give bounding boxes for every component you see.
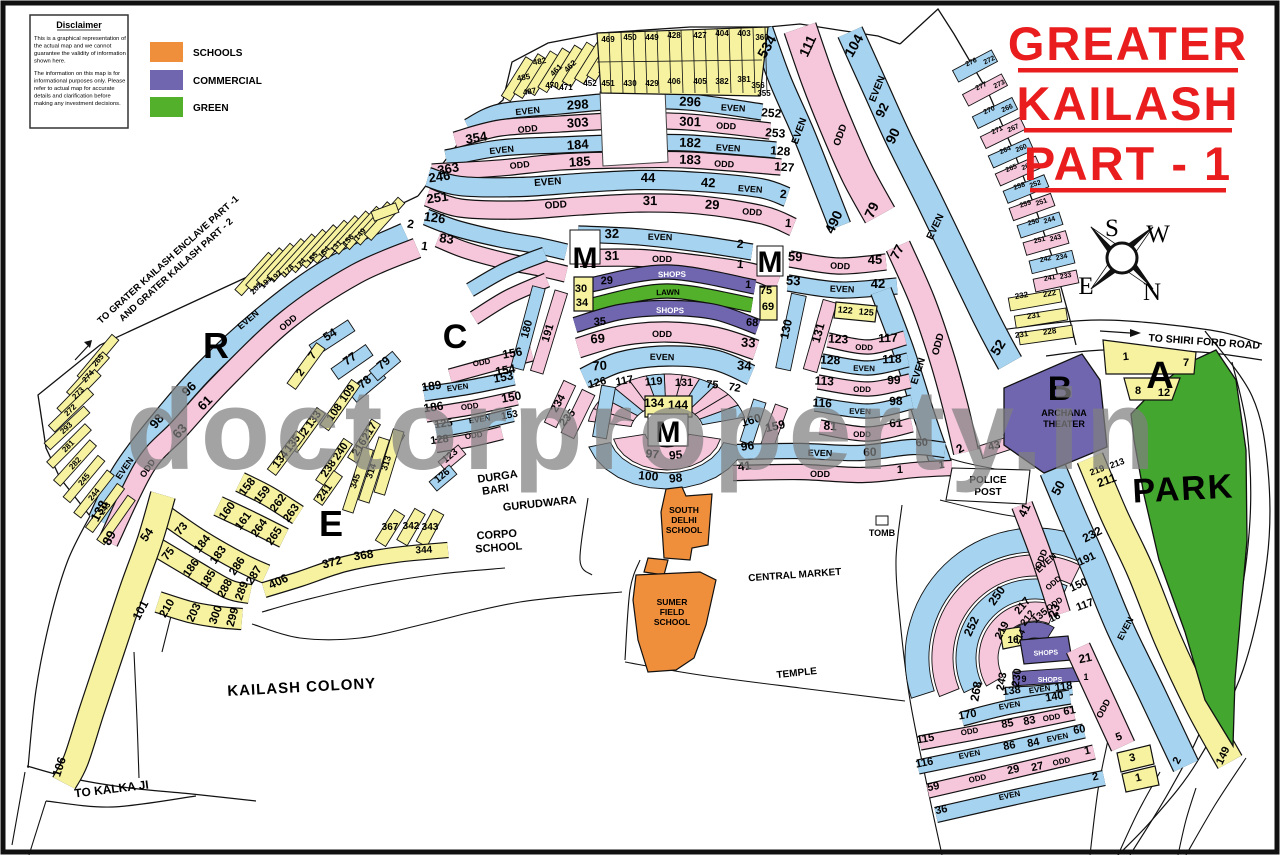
svg-text:SUMER: SUMER (657, 597, 688, 607)
svg-text:the actual map and we cannot: the actual map and we cannot (34, 44, 112, 50)
svg-text:123: 123 (828, 331, 849, 346)
svg-text:45: 45 (868, 252, 882, 267)
svg-text:403: 403 (737, 29, 751, 38)
svg-text:355: 355 (757, 89, 771, 98)
svg-text:85: 85 (1000, 717, 1014, 731)
svg-text:This is a graphical representa: This is a graphical representation of (34, 36, 126, 42)
svg-text:360: 360 (755, 33, 769, 42)
svg-text:ODD: ODD (544, 199, 567, 212)
svg-text:EVEN: EVEN (721, 102, 746, 113)
svg-text:The information on this map is: The information on this map is for (34, 71, 120, 77)
svg-text:30: 30 (575, 283, 587, 295)
svg-text:471: 471 (559, 83, 573, 92)
svg-text:53: 53 (786, 273, 801, 289)
svg-text:406: 406 (667, 77, 681, 86)
svg-text:368: 368 (353, 547, 375, 564)
svg-text:228: 228 (1042, 326, 1057, 337)
svg-text:252: 252 (761, 105, 782, 120)
svg-text:EVEN: EVEN (716, 142, 741, 153)
svg-text:138: 138 (1002, 684, 1022, 698)
svg-text:251: 251 (426, 189, 450, 207)
svg-text:29: 29 (1006, 763, 1020, 777)
svg-text:1: 1 (1083, 672, 1088, 682)
svg-text:E: E (1078, 273, 1093, 300)
svg-text:449: 449 (645, 33, 659, 42)
svg-text:SCHOOL: SCHOOL (654, 617, 690, 627)
svg-text:183: 183 (679, 152, 701, 168)
svg-text:1: 1 (1122, 351, 1129, 363)
svg-text:29: 29 (705, 197, 720, 213)
svg-text:469: 469 (601, 35, 615, 44)
svg-text:125: 125 (858, 306, 874, 317)
svg-text:EVEN: EVEN (738, 183, 763, 195)
svg-text:452: 452 (583, 79, 597, 88)
svg-text:refer to actual map for accura: refer to actual map for accurate (34, 86, 115, 92)
svg-text:470: 470 (545, 81, 559, 90)
svg-text:450: 450 (623, 33, 637, 42)
svg-text:128: 128 (770, 143, 791, 158)
svg-text:59: 59 (926, 780, 940, 794)
svg-text:182: 182 (679, 135, 701, 151)
svg-text:27: 27 (1030, 760, 1044, 774)
svg-text:367: 367 (382, 522, 399, 533)
svg-text:83: 83 (438, 230, 454, 247)
svg-text:PART - 1: PART - 1 (1024, 137, 1232, 190)
svg-text:ODD: ODD (517, 123, 538, 135)
svg-text:R: R (203, 325, 229, 366)
svg-text:SHOPS: SHOPS (1033, 649, 1058, 657)
svg-text:GREEN: GREEN (193, 103, 229, 114)
svg-text:FIELD: FIELD (660, 607, 685, 617)
svg-text:ODD: ODD (716, 120, 737, 131)
svg-text:427: 427 (693, 31, 707, 40)
svg-text:ODD: ODD (742, 206, 763, 217)
svg-text:428: 428 (667, 31, 681, 40)
svg-text:shown here.: shown here. (34, 59, 66, 65)
svg-text:EVEN: EVEN (830, 284, 855, 295)
svg-text:EVEN: EVEN (648, 232, 673, 242)
svg-text:ODD: ODD (855, 343, 873, 353)
svg-text:guarantee the validity of info: guarantee the validity of information (34, 51, 126, 57)
svg-text:303: 303 (566, 114, 589, 130)
svg-text:ODD: ODD (652, 254, 673, 264)
svg-text:SOUTH: SOUTH (669, 505, 699, 515)
svg-text:SCHOOL: SCHOOL (666, 525, 702, 535)
svg-text:430: 430 (623, 79, 637, 88)
svg-text:informational purposes only. P: informational purposes only. Please (34, 79, 125, 85)
svg-text:301: 301 (679, 114, 701, 130)
svg-text:N: N (1143, 279, 1161, 306)
svg-text:342: 342 (403, 521, 420, 532)
svg-text:69: 69 (590, 331, 605, 347)
svg-text:EVEN: EVEN (650, 352, 675, 362)
svg-text:C: C (443, 318, 468, 356)
svg-text:EVEN: EVEN (534, 176, 562, 189)
svg-text:31: 31 (643, 193, 658, 208)
svg-text:ODD: ODD (652, 329, 673, 339)
svg-text:31: 31 (604, 248, 619, 263)
svg-text:404: 404 (715, 29, 729, 38)
svg-text:451: 451 (601, 79, 615, 88)
svg-text:7: 7 (1183, 357, 1189, 369)
svg-text:184: 184 (566, 136, 589, 153)
svg-text:185: 185 (568, 153, 591, 169)
svg-text:LAWN: LAWN (656, 288, 680, 297)
svg-text:86: 86 (1002, 739, 1016, 753)
svg-text:details and clarification befo: details and clarification before (34, 94, 111, 100)
svg-text:TOMB: TOMB (869, 528, 896, 538)
svg-text:M: M (573, 242, 598, 275)
svg-text:10: 10 (1007, 635, 1019, 646)
svg-text:S: S (1105, 215, 1119, 242)
svg-text:1: 1 (736, 257, 744, 271)
svg-text:1: 1 (745, 279, 752, 291)
svg-text:61: 61 (1062, 704, 1076, 718)
svg-text:DELHI: DELHI (671, 515, 697, 525)
svg-text:246: 246 (428, 168, 452, 186)
svg-text:127: 127 (774, 159, 795, 174)
svg-text:75: 75 (760, 285, 772, 297)
svg-text:42: 42 (871, 276, 885, 291)
svg-text:118: 118 (882, 352, 902, 367)
svg-text:126: 126 (423, 209, 447, 227)
svg-text:69: 69 (762, 301, 774, 313)
svg-text:29: 29 (600, 275, 613, 288)
svg-text:SHOPS: SHOPS (656, 306, 685, 315)
svg-text:35: 35 (593, 316, 606, 329)
svg-text:33: 33 (741, 335, 756, 351)
svg-text:296: 296 (679, 94, 701, 110)
svg-text:59: 59 (788, 249, 803, 265)
svg-text:ODD: ODD (714, 158, 735, 169)
svg-text:122: 122 (837, 304, 853, 315)
svg-text:42: 42 (701, 175, 716, 191)
svg-text:2: 2 (736, 237, 744, 251)
svg-text:405: 405 (693, 77, 707, 86)
svg-text:GREATER: GREATER (1008, 17, 1248, 70)
svg-text:68: 68 (746, 317, 759, 330)
svg-text:SHOPS: SHOPS (658, 270, 687, 279)
svg-text:298: 298 (566, 96, 589, 112)
svg-text:doctorproperty.in: doctorproperty.in (125, 367, 1160, 494)
svg-text:M: M (758, 246, 783, 279)
svg-text:34: 34 (576, 297, 589, 309)
svg-text:128: 128 (820, 352, 841, 367)
svg-text:SCHOOLS: SCHOOLS (193, 48, 243, 59)
svg-text:83: 83 (1022, 714, 1036, 728)
svg-text:E: E (319, 503, 343, 544)
svg-text:9: 9 (1021, 674, 1026, 684)
svg-text:429: 429 (645, 79, 659, 88)
svg-text:32: 32 (604, 226, 619, 241)
svg-text:36: 36 (934, 803, 948, 817)
svg-text:381: 381 (737, 75, 751, 84)
svg-text:343: 343 (422, 522, 439, 533)
svg-text:382: 382 (715, 77, 729, 86)
svg-text:253: 253 (765, 125, 786, 140)
svg-text:W: W (1146, 221, 1170, 248)
svg-text:60: 60 (1072, 723, 1086, 737)
svg-text:ODD: ODD (509, 159, 530, 171)
svg-text:KAILASH: KAILASH (1017, 77, 1240, 130)
svg-text:ODD: ODD (830, 260, 851, 271)
svg-text:344: 344 (415, 545, 433, 557)
svg-text:44: 44 (641, 170, 656, 185)
svg-text:Disclaimer: Disclaimer (56, 20, 102, 30)
svg-text:COMMERCIAL: COMMERCIAL (193, 76, 262, 87)
svg-text:117: 117 (878, 331, 898, 346)
svg-text:making any investment decision: making any investment decisions. (34, 101, 121, 107)
